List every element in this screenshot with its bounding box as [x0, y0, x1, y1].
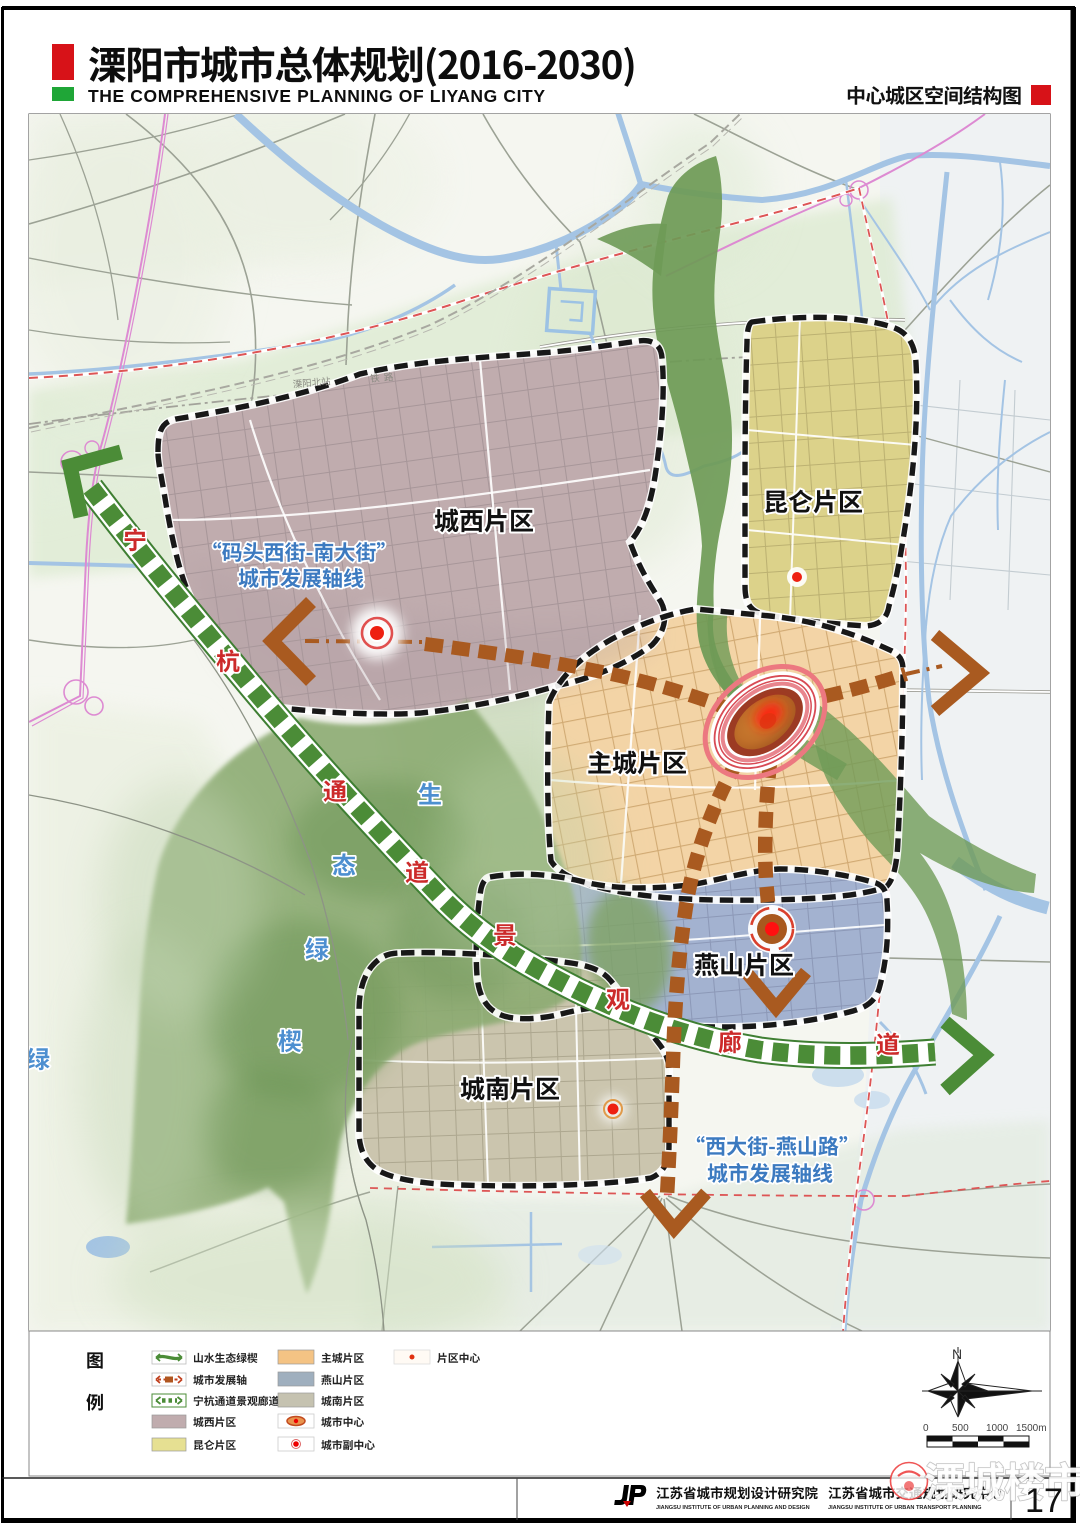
svg-text:THE COMPREHENSIVE PLANNING OF: THE COMPREHENSIVE PLANNING OF LIYANG CIT…: [88, 86, 546, 106]
svg-text:17: 17: [1025, 1482, 1063, 1520]
svg-text:N: N: [952, 1346, 962, 1362]
svg-text:1000: 1000: [986, 1423, 1009, 1434]
svg-text:JIANGSU INSTITUTE OF URBAN: JIANGSU INSTITUTE OF URBAN PLANNING AND …: [656, 1505, 810, 1511]
svg-text:500: 500: [952, 1423, 969, 1434]
svg-text:1500m: 1500m: [1016, 1423, 1047, 1434]
svg-text:JIANGSU INSTITUTE OF URBAN: JIANGSU INSTITUTE OF URBAN TRANSPORT PLA…: [828, 1505, 982, 1511]
svg-text:0: 0: [923, 1423, 929, 1434]
